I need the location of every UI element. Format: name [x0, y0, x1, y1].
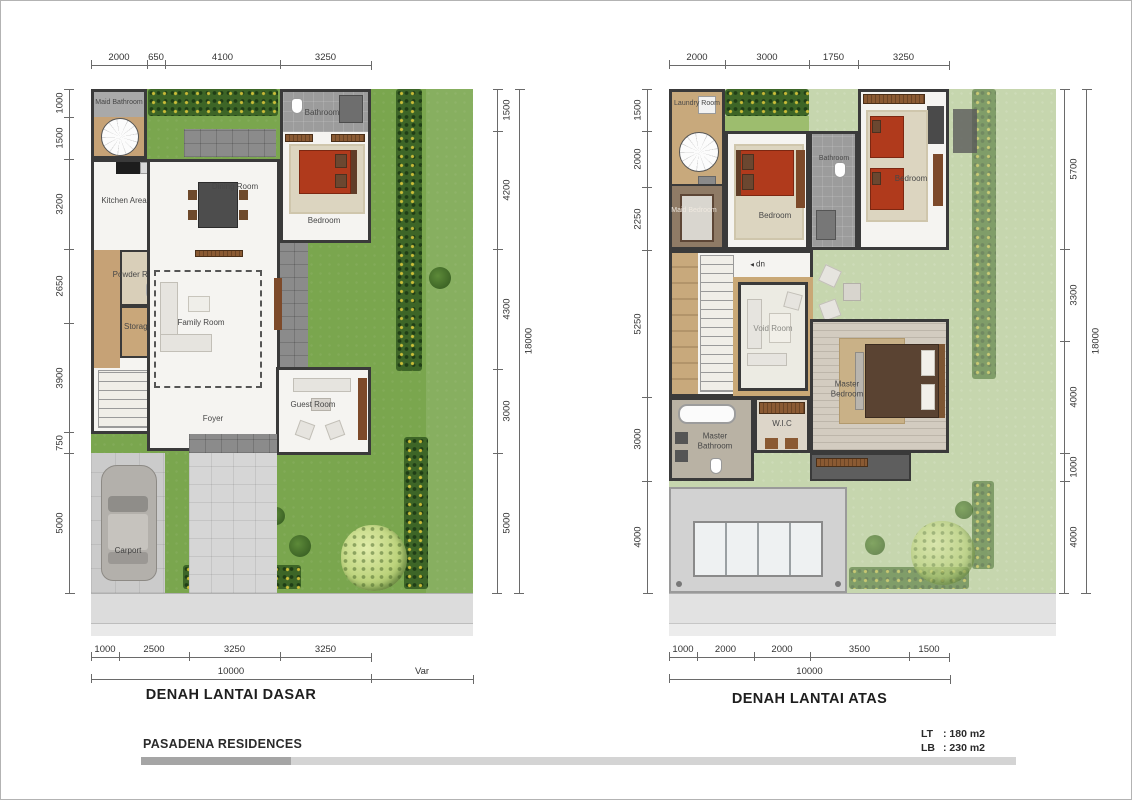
bedroom-cabinet: [933, 154, 943, 206]
stairs-down: [700, 255, 734, 392]
tree: [341, 525, 407, 591]
room-label-bathroom: Bathroom: [819, 155, 849, 163]
upper-dim-right: 5700 3300 4000 1000 4000: [1064, 89, 1081, 593]
bedroom-left-block: [725, 131, 809, 250]
ground-dim-left: 1000 1500 3200 2650 3900 750 5000: [53, 89, 70, 593]
room-label-maid-bedroom: Maid Bedroom: [667, 207, 721, 215]
tv-console: [274, 278, 282, 330]
shower: [816, 210, 836, 240]
side-terrace: [278, 243, 308, 369]
upper-dim-bottom: 1000 2000 2000 3500 1500: [669, 643, 949, 658]
room-label-master-bedroom: Master Bedroom: [820, 379, 874, 398]
upper-dim-bottom-total: 10000: [669, 665, 950, 680]
family-sofa: [160, 334, 212, 352]
dining-chair: [188, 210, 197, 220]
shrub-washed: [865, 535, 885, 555]
hall-floor: [94, 250, 120, 368]
void-room-frame: [733, 277, 813, 396]
wardrobe: [863, 94, 925, 104]
wardrobe: [331, 134, 365, 142]
room-label-master-bathroom: Master Bathroom: [688, 431, 742, 450]
ottoman: [785, 438, 798, 449]
hedge-planter: [725, 89, 809, 116]
hedge-east: [396, 89, 422, 371]
bed-pillow: [742, 154, 754, 170]
land-area-label: LT: [921, 728, 943, 740]
shrub-washed: [955, 501, 973, 519]
spiral-stair: [101, 118, 139, 156]
wardrobe: [759, 402, 805, 414]
upper-plan-title: DENAH LANTAI ATAS: [669, 691, 950, 707]
ground-plan-title: DENAH LANTAI DASAR: [91, 687, 371, 703]
car-roof: [108, 514, 148, 550]
building-area-label: LB: [921, 742, 943, 754]
room-label-laundry: Laundry Room: [670, 100, 724, 108]
shrub: [289, 535, 311, 557]
footer-bar-accent: [141, 757, 291, 765]
lawn-var-strip: [426, 89, 473, 593]
void-chair: [783, 291, 803, 311]
toilet: [710, 458, 722, 474]
room-label-bedroom-right: Bedroom: [895, 174, 927, 184]
guest-chair: [325, 420, 346, 441]
hedge-north: [148, 89, 278, 116]
living-block: [147, 159, 280, 451]
ottoman: [765, 438, 778, 449]
upper-floor-plan: Laundry Room Maid Bedroom Bedroom Bathro…: [669, 89, 1056, 635]
room-label-family: Family Room: [177, 318, 224, 328]
coffee-table: [188, 296, 210, 312]
ground-dim-right-total: 18000: [519, 89, 536, 593]
headboard: [351, 150, 357, 194]
room-label-bathroom: Bathroom: [305, 108, 340, 118]
family-sofa: [160, 282, 178, 340]
upper-dim-left: 1500 2000 2250 5250 3000 4000: [631, 89, 648, 593]
maid-bedroom-floor: [672, 184, 722, 247]
closet-unit: [927, 106, 944, 144]
tree-washed: [911, 521, 975, 585]
vanity-sink: [675, 432, 688, 444]
room-label-bedroom: Bedroom: [308, 216, 340, 226]
void-room: [738, 282, 808, 391]
room-label-bedroom-left: Bedroom: [759, 211, 791, 221]
planter-grass: [725, 116, 809, 131]
bed-pillow: [921, 350, 935, 376]
room-label-foyer: Foyer: [203, 414, 223, 424]
dining-chair: [188, 190, 197, 200]
room-label-carport: Carport: [115, 546, 142, 556]
building-area-value: : 230 m2: [943, 742, 985, 754]
headboard: [939, 344, 945, 418]
room-label-wic: W.I.C: [772, 419, 792, 429]
bed-pillow: [335, 174, 347, 188]
bathtub: [678, 404, 736, 424]
sidewalk: [669, 593, 1056, 624]
laundry-wing: [669, 89, 725, 250]
wardrobe: [285, 134, 313, 142]
ground-dim-top: 2000 650 4100 3250: [91, 51, 371, 66]
street-curb: [669, 623, 1056, 636]
stove: [116, 162, 140, 174]
sitting-table: [843, 283, 861, 301]
hedge-side-washed: [972, 481, 994, 569]
bed-pillow: [335, 154, 347, 168]
land-area: LT : 180 m2: [921, 728, 985, 740]
bed-pillow: [872, 120, 881, 133]
console-cabinet: [195, 250, 243, 257]
balcony-planter: [816, 458, 868, 467]
room-label-maid-bathroom: Maid Bathroom: [92, 99, 146, 107]
ground-dim-bottom: 1000 2500 3250 3250: [91, 643, 371, 658]
carport-roof: [669, 487, 847, 593]
maid-bed: [680, 194, 714, 242]
bed-pillow: [742, 174, 754, 190]
dining-chair: [239, 210, 248, 220]
land-area-value: : 180 m2: [943, 728, 985, 740]
shrub: [429, 267, 451, 289]
building-area: LB : 230 m2: [921, 742, 985, 754]
room-label-void: Void Room: [753, 324, 792, 334]
guest-cabinet: [358, 378, 367, 440]
car-windshield: [108, 496, 148, 512]
balcony: [810, 453, 911, 481]
room-label-kitchen: Kitchen Area: [101, 196, 146, 206]
guest-chair: [295, 420, 316, 441]
guest-block: [276, 367, 371, 455]
ground-dim-right: 1500 4200 4300 3000 5000: [497, 89, 514, 593]
sidewalk: [91, 593, 473, 624]
vanity-sink: [675, 450, 688, 462]
upper-dim-right-total: 18000: [1086, 89, 1103, 593]
street-curb: [91, 623, 473, 636]
linen-closets: [672, 253, 698, 394]
bed-pillow: [872, 172, 881, 185]
room-label-dining: Dining Room: [212, 182, 258, 192]
toilet: [834, 162, 846, 178]
bedroom-right-block: [858, 89, 949, 250]
hedge-front-side: [404, 437, 428, 589]
entry-path: [189, 453, 277, 593]
toilet: [291, 98, 303, 114]
north-patio: [184, 129, 276, 157]
roof-column: [835, 581, 841, 587]
bedroom-cabinet: [796, 150, 805, 208]
roof-column: [676, 581, 682, 587]
spiral-stair: [679, 132, 719, 172]
bathroom-block: [809, 131, 858, 250]
project-name: PASADENA RESIDENCES: [143, 737, 302, 751]
bed-pillow: [921, 384, 935, 410]
floorplan-sheet: Maid Bathroom Kitchen Area Powder Room S…: [0, 0, 1132, 800]
entry-porch: [189, 434, 277, 453]
room-label-guest: Guest Room: [291, 400, 336, 410]
car: [101, 465, 157, 581]
void-sofa: [747, 353, 787, 366]
shower: [339, 95, 363, 123]
footer-bar: [141, 757, 1016, 765]
upper-dim-top: 2000 3000 1750 3250: [669, 51, 949, 66]
ground-dim-bottom-total: 10000 Var: [91, 665, 473, 680]
guest-sofa: [293, 378, 351, 392]
headboard: [736, 150, 741, 196]
outdoor-unit: [953, 109, 977, 153]
ground-floor-plan: Maid Bathroom Kitchen Area Powder Room S…: [91, 89, 473, 635]
skylight: [693, 521, 823, 577]
stairs-down-label: dn: [749, 260, 765, 269]
